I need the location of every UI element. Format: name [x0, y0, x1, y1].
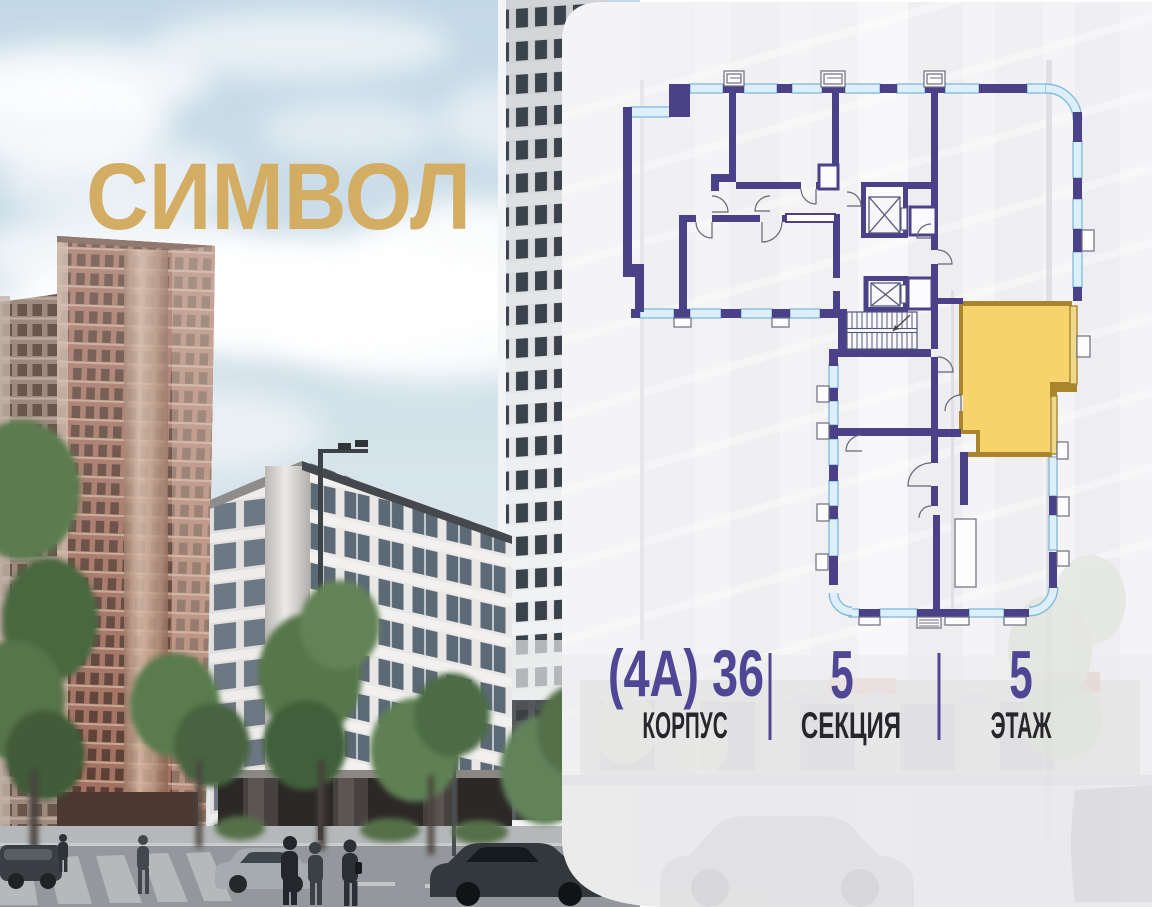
svg-text:5: 5: [1009, 637, 1032, 713]
svg-text:5: 5: [830, 637, 853, 713]
svg-text:КОРПУС: КОРПУС: [642, 706, 727, 747]
svg-text:СИМВОЛ: СИМВОЛ: [86, 144, 471, 250]
svg-text:(4А) 36: (4А) 36: [608, 637, 764, 711]
svg-text:ЭТАЖ: ЭТАЖ: [991, 706, 1052, 747]
svg-text:СЕКЦИЯ: СЕКЦИЯ: [801, 705, 901, 747]
